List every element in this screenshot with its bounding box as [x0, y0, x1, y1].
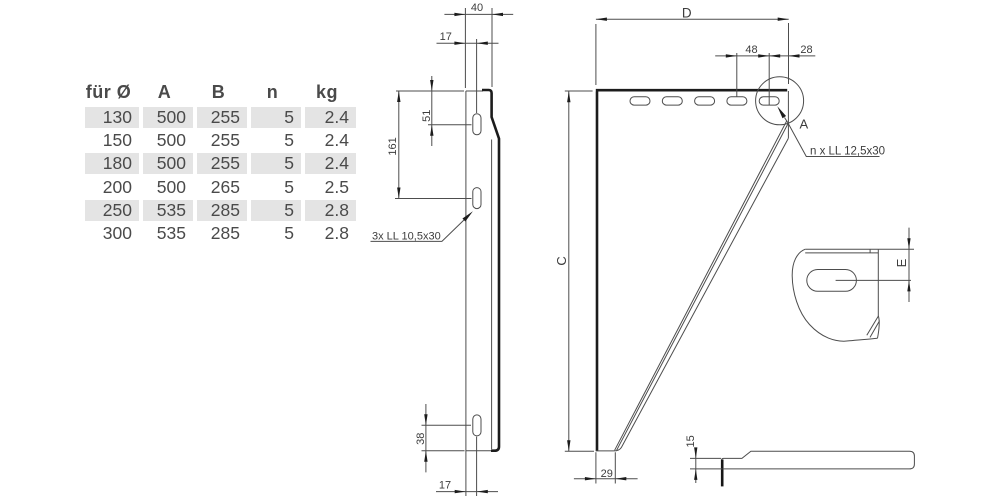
svg-text:D: D	[682, 6, 692, 21]
svg-text:A: A	[800, 117, 809, 132]
svg-text:E: E	[894, 258, 909, 267]
svg-text:n x LL 12,5x30: n x LL 12,5x30	[810, 145, 885, 157]
svg-text:17: 17	[439, 479, 451, 491]
svg-text:15: 15	[685, 435, 697, 447]
svg-text:3x LL 10,5x30: 3x LL 10,5x30	[372, 230, 441, 242]
svg-text:17: 17	[440, 31, 452, 43]
svg-text:C: C	[554, 256, 569, 265]
svg-text:28: 28	[800, 44, 812, 56]
svg-text:38: 38	[415, 433, 427, 445]
svg-text:48: 48	[745, 44, 757, 56]
svg-text:161: 161	[387, 137, 399, 155]
svg-text:40: 40	[471, 2, 483, 14]
svg-text:29: 29	[601, 468, 613, 480]
svg-text:51: 51	[421, 110, 433, 122]
